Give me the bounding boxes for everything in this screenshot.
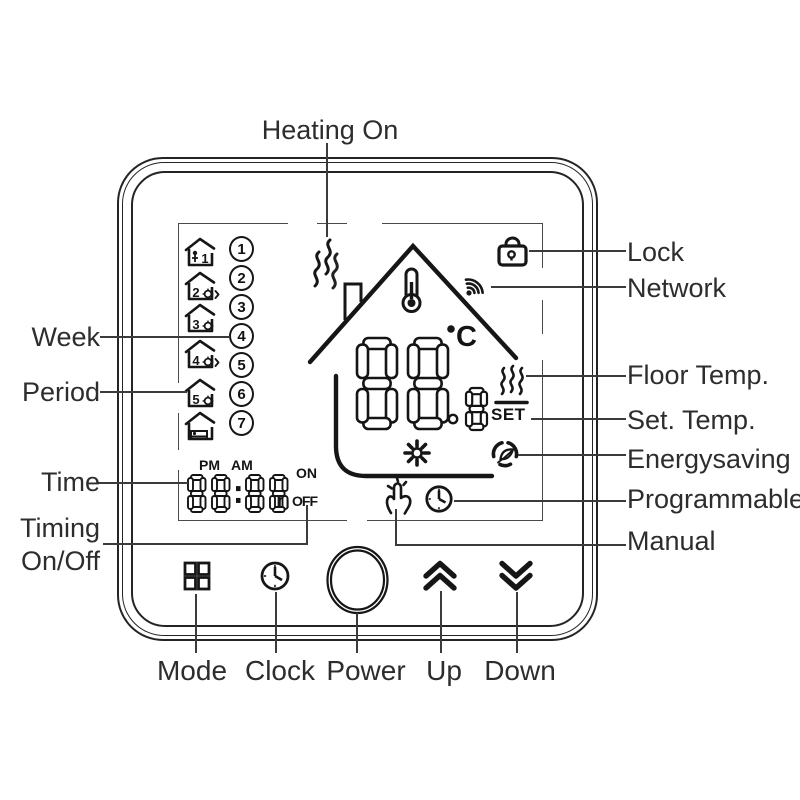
- sun-icon: [405, 441, 429, 465]
- callout-line-timing-vertical: [306, 505, 308, 545]
- period-house-icon-1: 1: [183, 236, 221, 268]
- timer-off-indicator: OFF: [292, 493, 317, 509]
- manual-hand-icon: [387, 478, 410, 514]
- thermometer-icon: [403, 269, 420, 312]
- power-button: [328, 547, 388, 613]
- callout-line-energysaving: [518, 454, 626, 456]
- callout-line-manual: [395, 544, 626, 546]
- period-house-icon-3: 3: [183, 302, 221, 334]
- svg-text:2: 2: [192, 285, 199, 300]
- callout-line-time: [98, 482, 188, 484]
- svg-text:5: 5: [192, 392, 199, 407]
- floor-temp-icon: [496, 366, 527, 403]
- label-time: Time: [0, 467, 100, 498]
- label-lock: Lock: [627, 237, 684, 268]
- week-day-number: 3: [229, 294, 254, 320]
- week-day-number: 2: [229, 265, 254, 291]
- period-house-icon-6: [183, 410, 221, 442]
- label-timing-line1: Timing: [0, 513, 100, 544]
- callout-line-programmable: [454, 500, 626, 502]
- pm-indicator: PM: [199, 457, 220, 473]
- set-indicator: SET: [491, 405, 526, 425]
- week-day-number: 6: [229, 381, 254, 407]
- callout-line-floor-temp: [526, 375, 626, 377]
- svg-text:1: 1: [201, 251, 208, 266]
- energysaving-icon: [493, 443, 516, 466]
- time-digits: [186, 473, 289, 514]
- label-heating-on: Heating On: [230, 115, 430, 146]
- programmable-clock-icon: [427, 487, 451, 511]
- week-day-number: 5: [229, 352, 254, 378]
- temp-unit: C: [456, 321, 477, 354]
- week-day-column: 1234567: [229, 236, 254, 436]
- callout-line-timing: [103, 543, 308, 545]
- callout-line-period: [100, 391, 187, 393]
- callout-line-heating-on: [326, 143, 328, 237]
- leader-line-up: [440, 591, 442, 653]
- period-house-icon-2: 2: [183, 270, 221, 302]
- callout-line-network: [491, 286, 626, 288]
- label-timing-line2: On/Off: [0, 546, 100, 577]
- thermostat-diagram: Heating On Week Period Time Timing On/Of…: [0, 0, 800, 800]
- label-down-button: Down: [450, 655, 590, 687]
- leader-line-mode: [195, 594, 197, 653]
- heating-on-icon: [315, 240, 338, 288]
- label-programmable: Programmable: [627, 484, 800, 515]
- label-floor-temp: Floor Temp.: [627, 360, 769, 391]
- up-button-icon: [426, 564, 454, 589]
- decimal-temp-digit: [464, 386, 489, 432]
- lock-icon: [499, 238, 526, 265]
- main-temp-digits: [355, 336, 450, 431]
- leader-line-clock: [275, 592, 277, 653]
- label-network: Network: [627, 273, 726, 304]
- label-manual: Manual: [627, 526, 716, 557]
- callout-line-set-temp: [531, 418, 626, 420]
- label-energysaving: Energysaving: [627, 444, 791, 475]
- svg-text:3: 3: [192, 317, 199, 332]
- mode-button-icon: [185, 563, 209, 589]
- week-day-number: 4: [229, 323, 254, 349]
- svg-text:4: 4: [192, 353, 200, 368]
- label-period: Period: [0, 377, 100, 408]
- callout-line-manual-vertical: [395, 509, 397, 545]
- leader-line-down: [516, 592, 518, 653]
- callout-line-lock: [529, 250, 626, 252]
- week-day-number: 7: [229, 410, 254, 436]
- period-house-icon-5: 5: [183, 377, 221, 409]
- label-set-temp: Set. Temp.: [627, 405, 756, 436]
- temp-decimal-point: [449, 415, 457, 423]
- period-house-icon-4: 4: [183, 338, 221, 370]
- timer-on-indicator: ON: [296, 465, 317, 481]
- am-indicator: AM: [231, 457, 253, 473]
- leader-line-power: [356, 613, 358, 653]
- label-week: Week: [0, 322, 100, 353]
- week-day-number: 1: [229, 236, 254, 262]
- callout-line-week: [100, 336, 230, 338]
- degree-dot: [447, 325, 455, 333]
- down-button-icon: [502, 564, 530, 589]
- clock-button-icon: [262, 563, 288, 589]
